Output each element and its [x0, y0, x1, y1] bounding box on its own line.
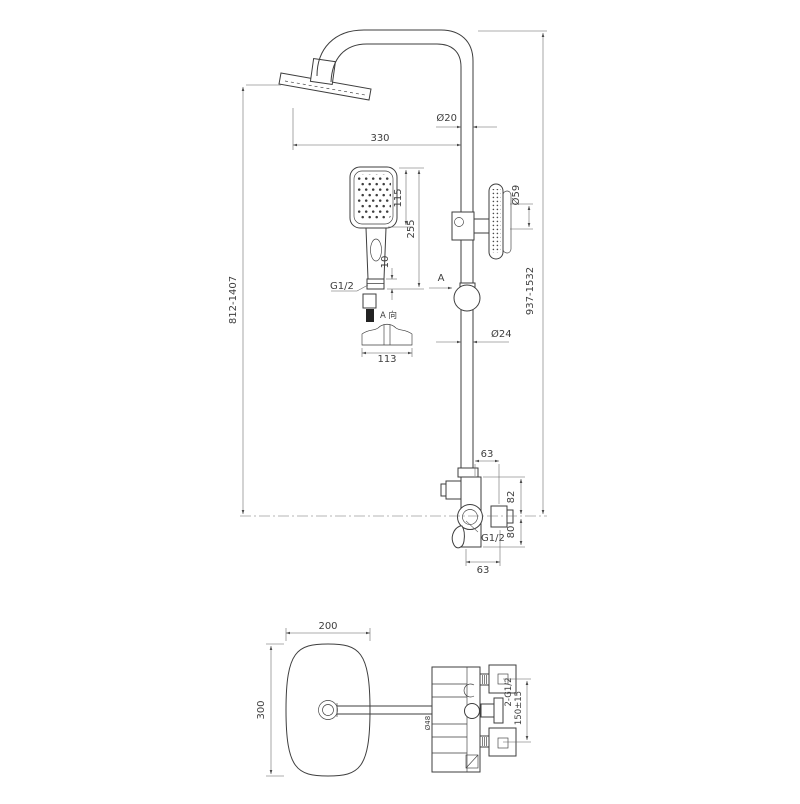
shower-arm-connector [310, 59, 335, 85]
front-view-dimensions: 812-1407 937-1532 330 Ø20 115 255 [228, 31, 547, 576]
shower-dimension-drawing: 812-1407 937-1532 330 Ø20 115 255 [0, 0, 800, 800]
dim-valve-top-offset: 63 [481, 449, 494, 460]
label-section-view: A 向 [380, 310, 397, 321]
slider-knob [454, 283, 480, 311]
dim-riser-diameter: Ø24 [491, 328, 512, 340]
shower-arm [317, 30, 473, 82]
label-handshower-thread: G1/2 [330, 281, 354, 292]
dim-escutcheon: Ø48 [424, 716, 432, 730]
dim-handshower-total: 255 [406, 219, 417, 238]
dim-valve-lower: 80 [506, 526, 517, 539]
plan-ball-joint [319, 701, 338, 720]
label-view-arrow: A [438, 273, 445, 284]
dim-height-right: 937-1532 [525, 267, 536, 315]
front-view: 812-1407 937-1532 330 Ø20 115 255 [228, 30, 547, 576]
dim-inlet-spacing: 150±15 [514, 691, 524, 725]
plan-valve-body [432, 667, 480, 772]
plan-shower-head [286, 644, 370, 776]
label-valve-thread: G1/2 [481, 533, 505, 544]
technical-drawing-canvas: 812-1407 937-1532 330 Ø20 115 255 [0, 0, 800, 800]
hand-shower-front [350, 167, 397, 289]
holder-stem [474, 219, 489, 233]
dim-handshower-head: 115 [393, 188, 404, 207]
valve-left-block [446, 481, 461, 499]
dim-head-depth: 300 [256, 700, 267, 719]
riser-pipe [461, 61, 473, 468]
hand-shower-handle [366, 228, 386, 279]
label-inlet-spec: 2-G1/2 [504, 677, 514, 706]
overhead-shower [279, 59, 371, 100]
dim-head-width: 200 [318, 621, 337, 632]
dim-section-width: 113 [377, 354, 396, 365]
valve-lever [452, 526, 464, 548]
hand-shower-spray-face [357, 174, 391, 221]
plan-valve-ball [465, 704, 480, 719]
dim-valve-bottom-offset: 63 [477, 565, 490, 576]
dim-handshower-connector: 10 [380, 256, 391, 269]
plan-view: 200 300 2-G1/2 150±15 Ø48 [256, 621, 531, 776]
dim-height-left: 812-1407 [228, 276, 239, 324]
hand-shower-hose-connector [367, 279, 384, 289]
dim-arm-diameter: Ø20 [436, 112, 457, 124]
dim-arm-length: 330 [370, 133, 389, 144]
section-a-profile [362, 324, 412, 345]
section-a-black-block [366, 309, 374, 322]
slider-block [452, 212, 474, 240]
valve-wall-block [491, 506, 507, 527]
slider-knob-circle [454, 285, 480, 311]
dim-holder-diameter: Ø59 [510, 185, 522, 206]
dim-valve-upper: 82 [506, 491, 517, 504]
